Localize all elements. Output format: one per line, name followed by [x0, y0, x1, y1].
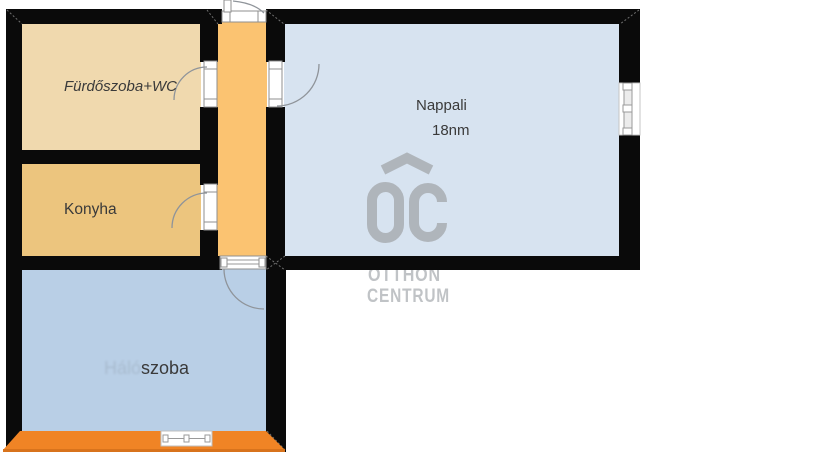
- room-label-bathroom: Fürdőszoba+WC: [64, 79, 177, 94]
- room-label-living: Nappali: [416, 98, 467, 113]
- room-label-bedroom: Hálószoba: [104, 359, 189, 377]
- room-hallway-area: [217, 22, 267, 257]
- room-label-bedroom-text: szoba: [141, 358, 189, 378]
- room-label-bedroom-faded: Háló: [104, 358, 141, 378]
- floorplan-drawing: OTTHON CENTRUM: [0, 0, 819, 460]
- room-area-living: 18nm: [432, 123, 470, 138]
- watermark-line2: CENTRUM: [367, 286, 450, 307]
- living-room-window: [619, 83, 640, 135]
- floorplan-canvas: OTTHON CENTRUM: [0, 0, 819, 460]
- room-label-kitchen: Konyha: [64, 202, 117, 218]
- room-living-area: [284, 22, 620, 257]
- entrance-door: [222, 0, 266, 22]
- balcony-strip: [3, 431, 285, 452]
- bedroom-window: [161, 431, 212, 446]
- room-bedroom-area: [22, 269, 268, 432]
